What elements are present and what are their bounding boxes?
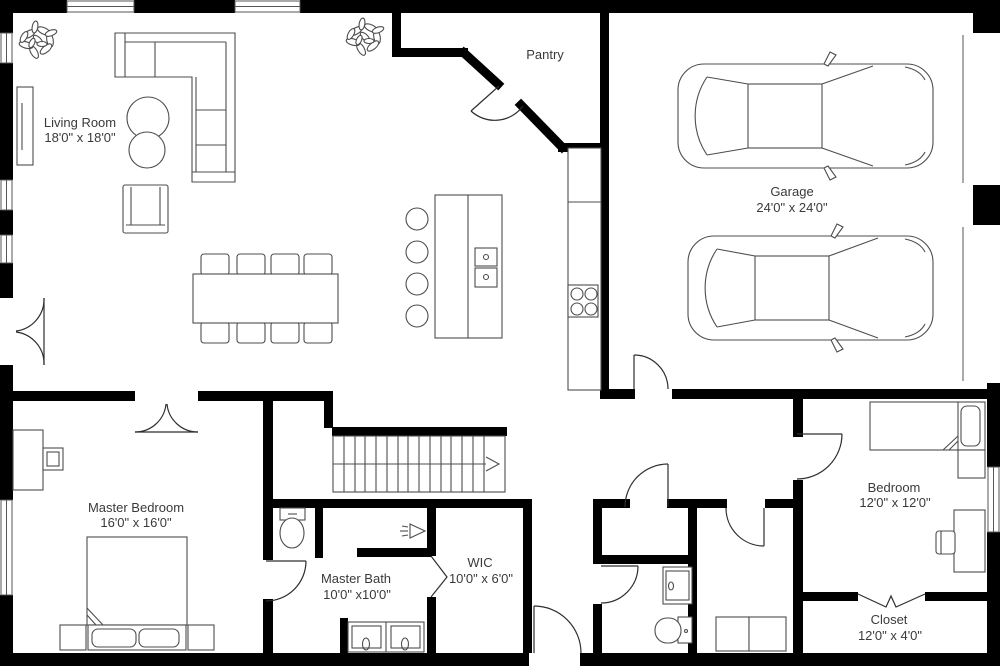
toilet: [655, 617, 692, 643]
window-bedroom: [988, 467, 999, 532]
patio-double-door: [16, 298, 44, 365]
master-bath-label: Master Bath: [321, 571, 391, 586]
nightstand: [958, 450, 985, 478]
dresser: [13, 430, 63, 490]
master-bedroom-double-door: [135, 404, 198, 432]
dining-table: [193, 274, 338, 323]
window-top-2: [235, 1, 300, 12]
pillow: [139, 629, 179, 647]
laundry-door: [726, 508, 764, 546]
kitchen: [406, 148, 601, 390]
plant-icon: [345, 18, 384, 57]
garage-entry-door: [634, 355, 668, 389]
hall-bath-fixtures: [655, 567, 786, 651]
master-bedroom-dims: 16'0" x 16'0": [100, 515, 172, 530]
bar-stools: [406, 208, 428, 327]
vanity-sink: [663, 567, 692, 604]
master-bath-dims: 10'0" x10'0": [323, 587, 391, 602]
wic-label: WIC: [467, 555, 492, 570]
tv-console: [17, 87, 33, 165]
stairs: [333, 436, 505, 492]
hall-closet-door: [625, 464, 668, 507]
plant-icon: [18, 21, 57, 60]
living-room-dims: 18'0" x 18'0": [44, 130, 116, 145]
dining-set: [193, 254, 338, 343]
double-vanity: [348, 622, 424, 652]
master-bedroom-label: Master Bedroom: [88, 500, 184, 515]
car: [678, 52, 933, 180]
window-master-bedroom: [1, 500, 12, 595]
pillow: [92, 629, 136, 647]
shower-head-icon: [400, 524, 425, 538]
garage-dims: 24'0" x 24'0": [756, 200, 828, 215]
living-room-label: Living Room: [44, 115, 116, 130]
bedroom-dims: 12'0" x 12'0": [859, 495, 931, 510]
car: [688, 224, 933, 352]
window-left-2: [1, 180, 12, 210]
master-bath-door: [266, 561, 306, 601]
bed: [870, 402, 985, 450]
round-coffee-tables: [127, 97, 169, 168]
pillow: [961, 406, 980, 446]
wic-door: [431, 556, 447, 597]
pantry-label: Pantry: [526, 47, 564, 62]
window-left-1: [1, 33, 12, 63]
front-door: [534, 606, 581, 653]
desk-and-chair: [936, 510, 985, 572]
floor-plan: Living Room 18'0" x 18'0" Pantry Garage …: [0, 0, 1000, 666]
washer-dryer: [716, 617, 786, 651]
kitchen-counter: [568, 148, 601, 390]
closet-bifold-door: [858, 594, 925, 607]
pantry-door: [471, 86, 523, 120]
kitchen-island: [435, 195, 502, 338]
bedroom-label: Bedroom: [868, 480, 921, 495]
hall-bathroom-door: [601, 566, 638, 603]
armchair: [123, 185, 168, 233]
bedroom-door: [797, 434, 842, 479]
nightstand: [188, 625, 214, 650]
window-left-3: [1, 235, 12, 263]
floor-plan-canvas: Living Room 18'0" x 18'0" Pantry Garage …: [0, 0, 1000, 666]
master-bedroom-furniture: [13, 430, 214, 650]
wic-dims: 10'0" x 6'0": [449, 571, 513, 586]
window-top-1: [67, 1, 134, 12]
nightstand: [60, 625, 86, 650]
garage-label: Garage: [770, 184, 813, 199]
master-bed: [87, 537, 187, 650]
closet-label: Closet: [871, 612, 908, 627]
toilet: [280, 508, 305, 548]
closet-dims: 12'0" x 4'0": [858, 628, 922, 643]
